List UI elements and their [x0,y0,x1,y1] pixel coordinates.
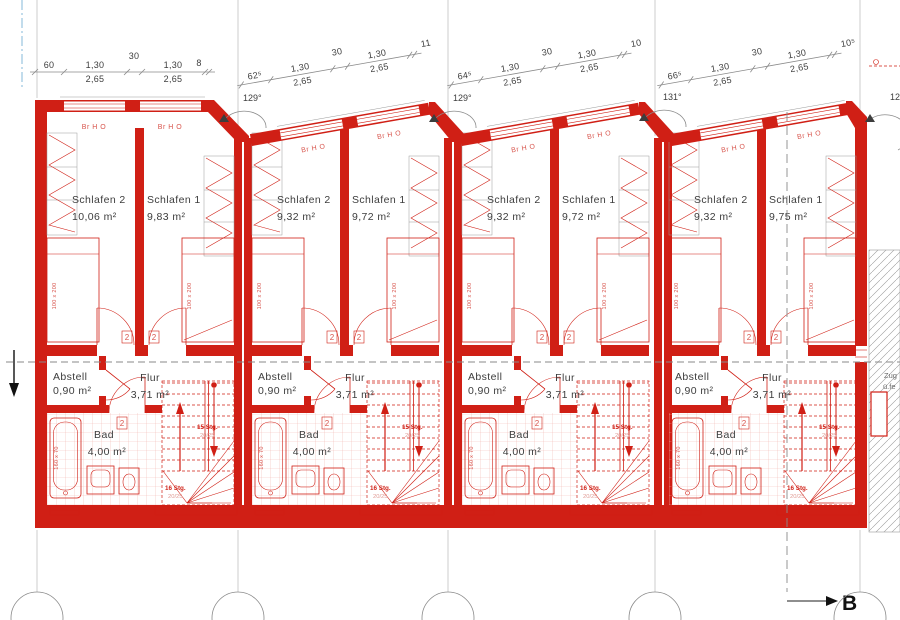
stairs-up-detail: 20/25 [822,433,837,439]
room-area-schlafen1: 9,75 m² [769,211,807,223]
room-area-abstell: 0,90 m² [258,385,296,397]
window-label: Br H O [158,124,182,131]
dim-end: 11 [420,37,432,49]
room-label-bad: Bad [509,429,529,441]
dim-offset: 66⁵ [667,69,683,81]
adjacent-door [871,392,887,436]
side-note-line2: ü.fe [883,382,896,391]
stair-down-marker [415,382,423,457]
door-abstell [521,370,545,400]
room-label-abstell: Abstell [468,371,502,383]
door-abstell [106,370,130,400]
room-area-schlafen2: 9,32 m² [487,211,525,223]
dim-height: 2,65 [712,75,732,88]
dim-width: 1,30 [367,47,387,60]
bed-schlafen1: 100 x 200 [597,238,649,342]
dim-end: 10 [630,37,642,49]
room-label-schlafen2: Schlafen 2 [487,194,541,206]
dim-height: 2,65 [502,75,522,88]
wardrobe-schlafen1 [204,156,234,256]
angle-label: 129° [453,93,472,103]
wardrobe-schlafen1 [409,156,439,256]
tub-size-label: 160 x 70 [259,446,265,470]
window-label: Br H O [377,130,402,141]
dim-width: 1,30 [164,60,183,70]
bed-size-label: 100 x 200 [602,283,608,310]
stairs-down-detail: 20/25 [583,494,598,500]
stairs-up-detail: 20/25 [615,433,630,439]
room-area-flur: 3,71 m² [336,389,374,401]
unit-1: 100 x 200 100 x 200 [47,128,237,515]
dim-offset: 64⁵ [457,69,473,81]
stairs: 15 Stg. 20/25 16 Stg. 20/25 [577,381,649,505]
dim-end: 8 [196,58,201,68]
grid-lines-top [37,0,860,136]
room-area-abstell: 0,90 m² [468,385,506,397]
stair-up-arrow [798,402,806,471]
window-label: Br H O [587,130,612,141]
room-area-flur: 3,71 m² [753,389,791,401]
stairs-down-detail: 20/25 [790,494,805,500]
dim-end: 10⁵ [840,37,856,49]
window [64,102,125,111]
grid-bubble [11,592,63,620]
room-area-schlafen2: 9,32 m² [694,211,732,223]
room-area-flur: 3,71 m² [131,389,169,401]
room-area-flur: 3,71 m² [546,389,584,401]
grid-bubble [212,592,264,620]
dim-width: 1,30 [577,47,597,60]
room-label-flur: Flur [345,372,365,384]
window-label: Br H O [721,143,746,154]
units: 100 x 200 100 x 200 [47,128,859,515]
floor-plan-page: Zug ü.fe [0,0,900,620]
door-tag-number: 2 [567,333,572,342]
room-area-schlafen1: 9,83 m² [147,211,185,223]
grid-lines-bottom [11,530,886,620]
stairs-down-label: 16 Stg. [165,485,186,492]
dim-offset: 60 [44,60,55,70]
room-label-bad: Bad [94,429,114,441]
dimension-line: 64⁵ 1,30 2,65 30 1,30 2,65 10 [444,30,645,97]
stair-up-arrow [176,402,184,471]
unit-4: 100 x 200 100 x 200 [669,128,859,515]
room-area-abstell: 0,90 m² [675,385,713,397]
door-tag-number: 2 [152,333,157,342]
dim-width: 1,30 [86,60,105,70]
bed-schlafen2: 100 x 200 [462,238,514,342]
right-exterior-wall [855,117,867,528]
tub-size-label: 160 x 70 [469,446,475,470]
bed-schlafen2: 100 x 200 [669,238,721,342]
room-area-schlafen2: 9,32 m² [277,211,315,223]
door-tag: 2 [327,331,337,343]
room-area-bad: 4,00 m² [88,446,126,458]
stairs-down-label: 16 Stg. [370,485,391,492]
room-label-flur: Flur [762,372,782,384]
room-label-schlafen1: Schlafen 1 [147,194,201,206]
door-tag-number: 2 [357,333,362,342]
tub-size-label: 160 x 70 [54,446,60,470]
door-tag-number: 2 [325,419,330,428]
door-tag-number: 2 [774,333,779,342]
dim-height: 2,65 [579,61,599,74]
window-label: Br H O [301,143,326,154]
dim-pier: 30 [541,46,553,58]
door-tag: 2 [537,331,547,343]
stair-down-marker [832,382,840,457]
angle-label: 129° [243,93,262,103]
bed-schlafen1: 100 x 200 [182,238,234,342]
right-wall-opening [855,346,867,362]
dim-width: 1,30 [500,61,520,74]
door-tag-number: 2 [125,333,130,342]
dim-height: 2,65 [369,61,389,74]
tub-size-label: 160 x 70 [676,446,682,470]
room-area-bad: 4,00 m² [503,446,541,458]
window-label: Br H O [797,130,822,141]
adjacent-building-hatch: Zug ü.fe [869,60,900,533]
section-marker-b: B [842,592,857,615]
bed-schlafen2: 100 x 200 [252,238,304,342]
door-tag: 2 [771,331,781,343]
side-note-line1: Zug [884,371,897,380]
dim-offset: 62⁵ [247,69,263,81]
door-tag: 2 [354,331,364,343]
jog-wall [208,100,249,142]
unit-3: 100 x 200 100 x 200 [462,128,652,515]
door-tag-number: 2 [742,419,747,428]
jog-wall [846,101,867,128]
stairs-down-detail: 20/25 [373,494,388,500]
wardrobe-schlafen1 [619,156,649,256]
bed-size-label: 100 x 200 [257,283,263,310]
room-label-bad: Bad [299,429,319,441]
door-abstell [728,370,752,400]
door-tag-number: 2 [535,419,540,428]
dim-width: 1,30 [710,61,730,74]
dimension-line: 62⁵ 1,30 2,65 30 1,30 2,65 11 [234,31,435,98]
unit-2: 100 x 200 100 x 200 [252,128,442,515]
dimension-line: 60 1,30 2,65 30 1,30 2,65 8 [30,51,215,84]
room-label-abstell: Abstell [53,371,87,383]
room-label-schlafen2: Schlafen 2 [277,194,331,206]
dim-pier: 30 [129,51,140,61]
window-label: Br H O [511,143,536,154]
section-b-arrow-head [826,596,838,606]
angle-label: 12 [890,92,900,102]
floor-plan-svg: Zug ü.fe [0,0,900,620]
room-label-schlafen2: Schlafen 2 [694,194,748,206]
stairs: 15 Stg. 20/25 16 Stg. 20/25 [784,381,856,505]
door-tag-number: 2 [120,419,125,428]
stairs-up-detail: 20/25 [405,433,420,439]
grid-bubble [422,592,474,620]
room-area-schlafen1: 9,72 m² [562,211,600,223]
stairs: 15 Stg. 20/25 16 Stg. 20/25 [367,381,439,505]
window-label: Br H O [82,124,106,131]
section-arrow-head [9,383,19,397]
bed-schlafen2: 100 x 200 [47,238,99,342]
wardrobe-schlafen1 [826,156,856,256]
grid-bubble [629,592,681,620]
stairs-up-label: 15 Stg. [402,424,423,431]
door-tag-number: 2 [330,333,335,342]
room-label-schlafen1: Schlafen 1 [769,194,823,206]
stairs-up-label: 15 Stg. [819,424,840,431]
room-label-schlafen1: Schlafen 1 [562,194,616,206]
angle-label: 131° [663,92,682,102]
stairs-up-label: 15 Stg. [197,424,218,431]
dim-height: 2,65 [164,74,183,84]
stair-down-marker [210,382,218,457]
room-area-schlafen2: 10,06 m² [72,211,117,223]
door-tag-number: 2 [540,333,545,342]
bed-schlafen1: 100 x 200 [804,238,856,342]
room-label-schlafen1: Schlafen 1 [352,194,406,206]
room-area-bad: 4,00 m² [710,446,748,458]
section-line-b: B [787,112,857,615]
door-tag-number: 2 [747,333,752,342]
dim-width: 1,30 [290,61,310,74]
room-label-abstell: Abstell [675,371,709,383]
door-tag: 2 [564,331,574,343]
dim-height: 2,65 [86,74,105,84]
room-label-flur: Flur [555,372,575,384]
bed-size-label: 100 x 200 [52,283,58,310]
stair-up-arrow [381,402,389,471]
room-area-bad: 4,00 m² [293,446,331,458]
door-tag: 2 [122,331,132,343]
door-tag: 2 [744,331,754,343]
door-abstell [311,370,335,400]
bed-size-label: 100 x 200 [467,283,473,310]
room-area-schlafen1: 9,72 m² [352,211,390,223]
room-label-schlafen2: Schlafen 2 [72,194,126,206]
bed-size-label: 100 x 200 [674,283,680,310]
dim-pier: 30 [331,46,343,58]
door-tag: 2 [149,331,159,343]
room-area-abstell: 0,90 m² [53,385,91,397]
dimension-line: 66⁵ 1,30 2,65 30 1,30 2,65 10⁵ [654,30,859,98]
stairs-down-detail: 20/25 [168,494,183,500]
stairs-up-label: 15 Stg. [612,424,633,431]
stairs-up-detail: 20/25 [200,433,215,439]
stairs-down-label: 16 Stg. [787,485,808,492]
bed-size-label: 100 x 200 [809,283,815,310]
bed-schlafen1: 100 x 200 [387,238,439,342]
bed-size-label: 100 x 200 [187,283,193,310]
stair-up-arrow [591,402,599,471]
stair-down-marker [625,382,633,457]
bed-size-label: 100 x 200 [392,283,398,310]
dim-height: 2,65 [292,75,312,88]
stairs-down-label: 16 Stg. [580,485,601,492]
stairs: 15 Stg. 20/25 16 Stg. 20/25 [162,381,234,505]
room-label-flur: Flur [140,372,160,384]
room-label-bad: Bad [716,429,736,441]
dim-width: 1,30 [787,47,807,60]
room-label-abstell: Abstell [258,371,292,383]
dim-pier: 30 [751,46,763,58]
dim-height: 2,65 [789,61,809,74]
window [140,102,201,111]
left-exterior-wall [35,100,47,528]
